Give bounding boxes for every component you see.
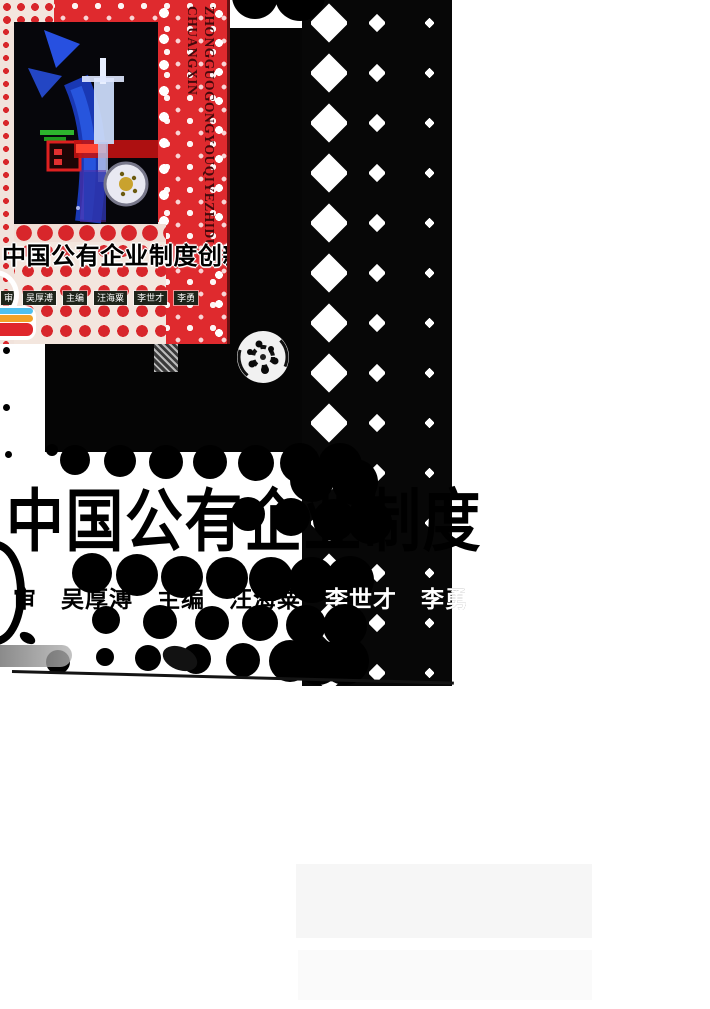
halftone-dot (135, 645, 161, 671)
halftone-dot (92, 606, 120, 634)
credit-badge: 李勇 (174, 291, 198, 305)
halftone-dot (272, 498, 310, 536)
halftone-dot (149, 445, 183, 479)
halftone-dot (193, 445, 227, 479)
cover-diamond-column (157, 0, 171, 240)
halftone-dot (242, 605, 278, 641)
halftone-dot (238, 445, 274, 481)
halftone-dot (46, 444, 58, 456)
pinyin-line-2: CHUANGXIN (184, 6, 201, 240)
show-through-block (298, 950, 592, 1000)
halftone-dot (3, 404, 10, 411)
halftone-dot (195, 606, 229, 640)
halftone-dot (143, 605, 177, 639)
pinyin-line-1: ZHONGGUOGONGYOUQIYEZHIDU (201, 6, 218, 240)
cover-title: 中国公有企业制度创新 (2, 243, 230, 272)
halftone-dot (3, 347, 10, 354)
cover-photo-art (14, 22, 158, 224)
halftone-dot (231, 497, 265, 531)
book-cover: ZHONGGUOGONGYOUQIYEZHIDU CHUANGXIN 中国公有企… (0, 0, 230, 344)
scanned-page: 中国公有企业制度 审 吴厚溥 主编 汪海粟 李世才 李勇 审 吴厚溥 主编 汪海… (0, 0, 710, 1009)
halftone-dot (60, 445, 90, 475)
logo-stripe-orange (0, 315, 33, 322)
cover-photo-strip (14, 224, 166, 242)
credit-badge: 李世才 (134, 291, 167, 305)
cover-edge-shadow (227, 0, 230, 344)
logo-stripe-red (0, 323, 33, 336)
halftone-dot (232, 0, 278, 19)
halftone-dot (5, 451, 12, 458)
credit-badge: 吴厚溥 (23, 291, 56, 305)
bw-wheel-graphic (234, 328, 292, 386)
halftone-dot (226, 643, 260, 677)
halftone-dot (96, 648, 114, 666)
halftone-dot (104, 445, 136, 477)
credit-badge: 主编 (63, 291, 87, 305)
show-through-block (296, 864, 592, 938)
logo-stripe-blue (0, 308, 33, 314)
pinyin-vertical-text: ZHONGGUOGONGYOUQIYEZHIDU CHUANGXIN (184, 6, 218, 240)
ink-smudge (0, 645, 72, 667)
publisher-logo (0, 306, 36, 340)
diamond-column-small (425, 0, 434, 686)
cover-credits-row: 审 吴厚溥 主编 汪海粟 李世才 李勇 (1, 291, 198, 305)
halftone-dot (348, 500, 392, 544)
cover-photo (14, 22, 158, 224)
credit-badge: 汪海粟 (94, 291, 127, 305)
